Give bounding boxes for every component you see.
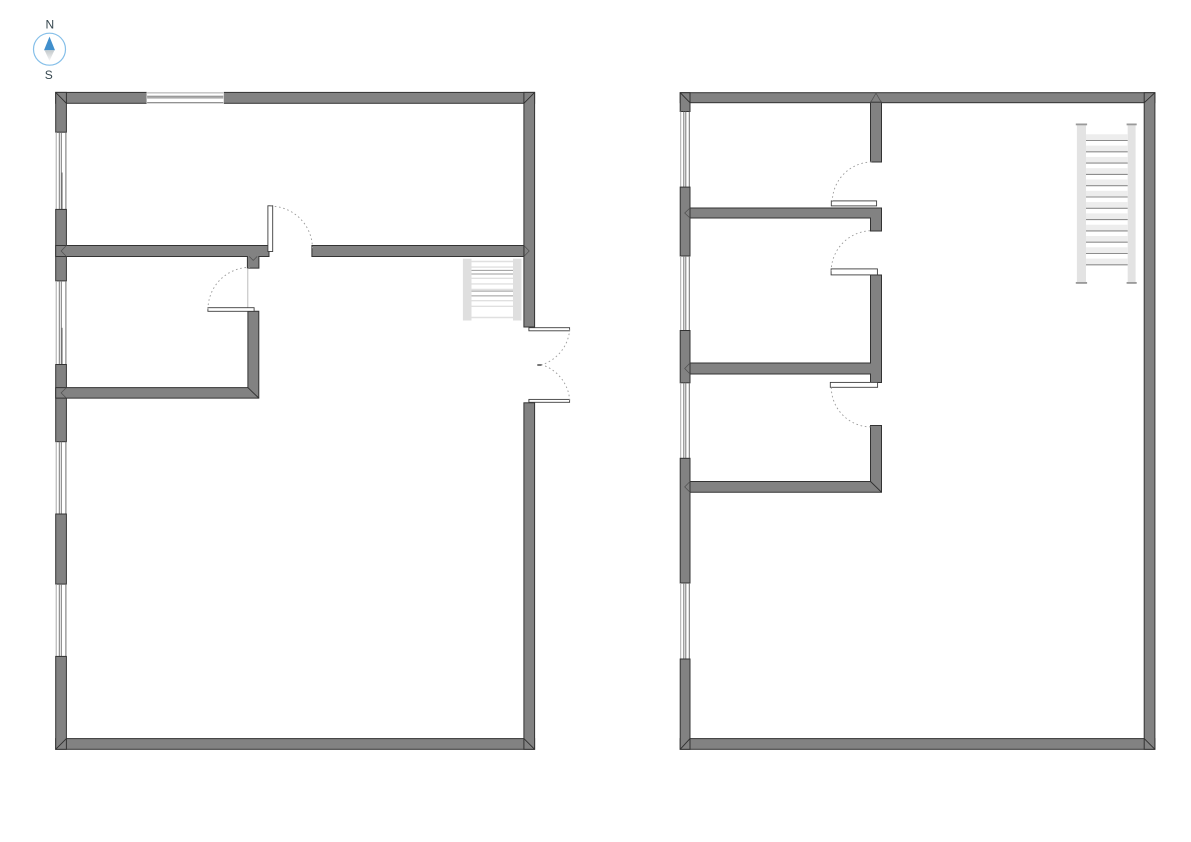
svg-text:N: N <box>45 18 54 32</box>
svg-text:S: S <box>45 68 53 82</box>
